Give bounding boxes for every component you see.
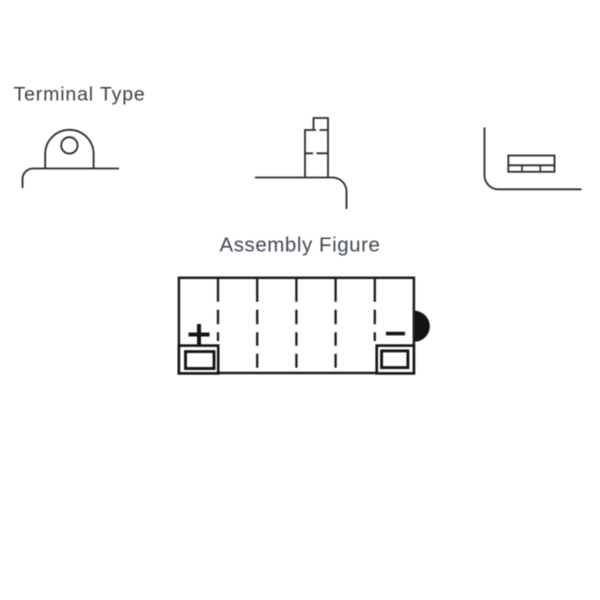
svg-text:Terminal Type: Terminal Type (14, 84, 146, 106)
svg-text:Assembly Figure: Assembly Figure (220, 234, 381, 257)
